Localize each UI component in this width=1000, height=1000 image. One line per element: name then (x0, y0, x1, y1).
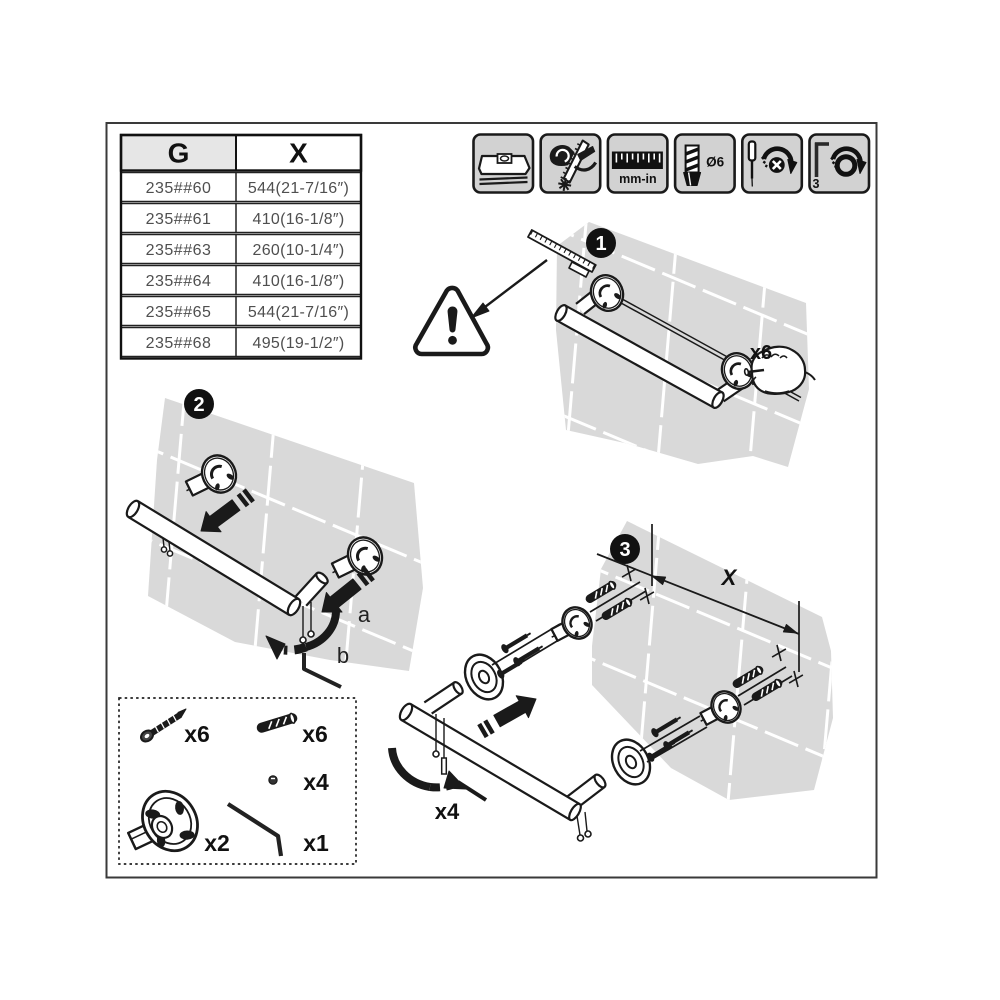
svg-text:235##64: 235##64 (146, 273, 212, 290)
svg-text:235##63: 235##63 (146, 242, 212, 259)
svg-text:b: b (337, 643, 349, 668)
svg-text:410(16-1/8″): 410(16-1/8″) (253, 273, 345, 290)
svg-text:x1: x1 (303, 830, 329, 856)
svg-text:x6: x6 (750, 342, 772, 364)
svg-text:3: 3 (813, 177, 820, 191)
svg-text:235##68: 235##68 (146, 335, 212, 352)
svg-text:G: G (168, 138, 190, 169)
svg-text:235##65: 235##65 (146, 304, 212, 321)
svg-text:410(16-1/8″): 410(16-1/8″) (253, 211, 345, 228)
svg-text:X: X (720, 565, 738, 590)
svg-text:2: 2 (193, 394, 204, 416)
svg-text:3: 3 (619, 539, 630, 561)
svg-text:1: 1 (595, 233, 606, 255)
svg-text:x4: x4 (303, 769, 329, 795)
svg-text:495(19-1/2″): 495(19-1/2″) (253, 335, 345, 352)
svg-text:x6: x6 (302, 721, 328, 747)
svg-text:X: X (289, 138, 308, 169)
svg-text:544(21-7/16″): 544(21-7/16″) (248, 180, 349, 197)
svg-text:544(21-7/16″): 544(21-7/16″) (248, 304, 349, 321)
svg-text:235##60: 235##60 (146, 180, 212, 197)
svg-text:235##61: 235##61 (146, 211, 212, 228)
svg-text:x4: x4 (435, 799, 460, 824)
svg-text:260(10-1/4″): 260(10-1/4″) (253, 242, 345, 259)
svg-text:x6: x6 (184, 721, 210, 747)
svg-text:x2: x2 (204, 830, 230, 856)
svg-text:mm-in: mm-in (619, 172, 657, 186)
svg-text:a: a (358, 602, 371, 627)
svg-text:Ø6: Ø6 (706, 155, 725, 170)
